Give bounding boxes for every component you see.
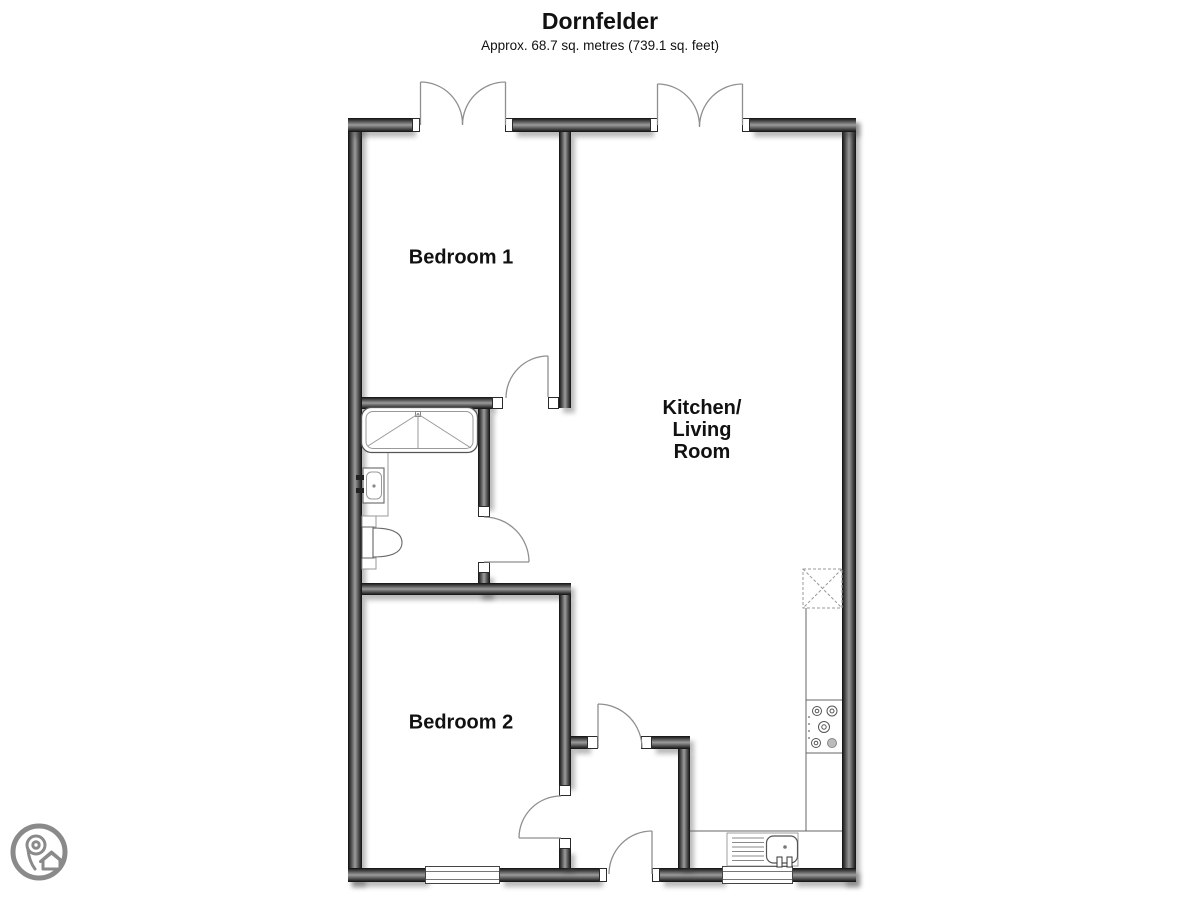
room-label-bedroom1: Bedroom 1 bbox=[409, 247, 513, 270]
door-swing-arc bbox=[598, 704, 642, 748]
bathtub-with-shower-icon bbox=[362, 408, 478, 453]
map-pin-house-logo-icon bbox=[8, 821, 76, 889]
door-bathroom bbox=[484, 517, 529, 562]
plan-overlay bbox=[0, 0, 1200, 900]
door-bedroom2 bbox=[519, 796, 561, 838]
kitchen-label-line1: Kitchen/ bbox=[663, 397, 742, 419]
room-label-bedroom2: Bedroom 2 bbox=[409, 712, 513, 735]
toilet-icon bbox=[362, 516, 402, 569]
door-swing-arc bbox=[506, 356, 548, 398]
room-label-kitchen-living: Kitchen/ Living Room bbox=[622, 397, 782, 463]
kitchen-sink-icon bbox=[732, 836, 798, 867]
door-swing-arc bbox=[700, 84, 743, 127]
pin-inner-ring bbox=[33, 842, 39, 848]
washbasin-icon bbox=[356, 468, 384, 503]
door-swing-arc bbox=[421, 82, 463, 124]
drainer-lines bbox=[732, 838, 764, 861]
door-swing-arc bbox=[484, 517, 529, 562]
kitchen-counter-outline bbox=[690, 608, 842, 866]
hob-icon bbox=[806, 700, 842, 753]
appliance-space-icon bbox=[803, 569, 842, 608]
door-swing-arc bbox=[519, 796, 561, 838]
french-door-bedroom1 bbox=[421, 82, 506, 125]
kitchen-label-line3: Room bbox=[674, 441, 731, 463]
door-swing-arc bbox=[463, 82, 506, 125]
floor-plan-canvas: Dornfelder Approx. 68.7 sq. metres (739.… bbox=[0, 0, 1200, 900]
french-door-kitchen bbox=[658, 84, 743, 127]
door-swing-arc bbox=[658, 84, 700, 126]
door-hall-kitchen bbox=[598, 704, 642, 748]
kitchen-label-line2: Living bbox=[673, 419, 732, 441]
door-swing-arc bbox=[609, 831, 652, 874]
door-front-entrance bbox=[609, 831, 652, 874]
door-bedroom1 bbox=[506, 356, 548, 398]
